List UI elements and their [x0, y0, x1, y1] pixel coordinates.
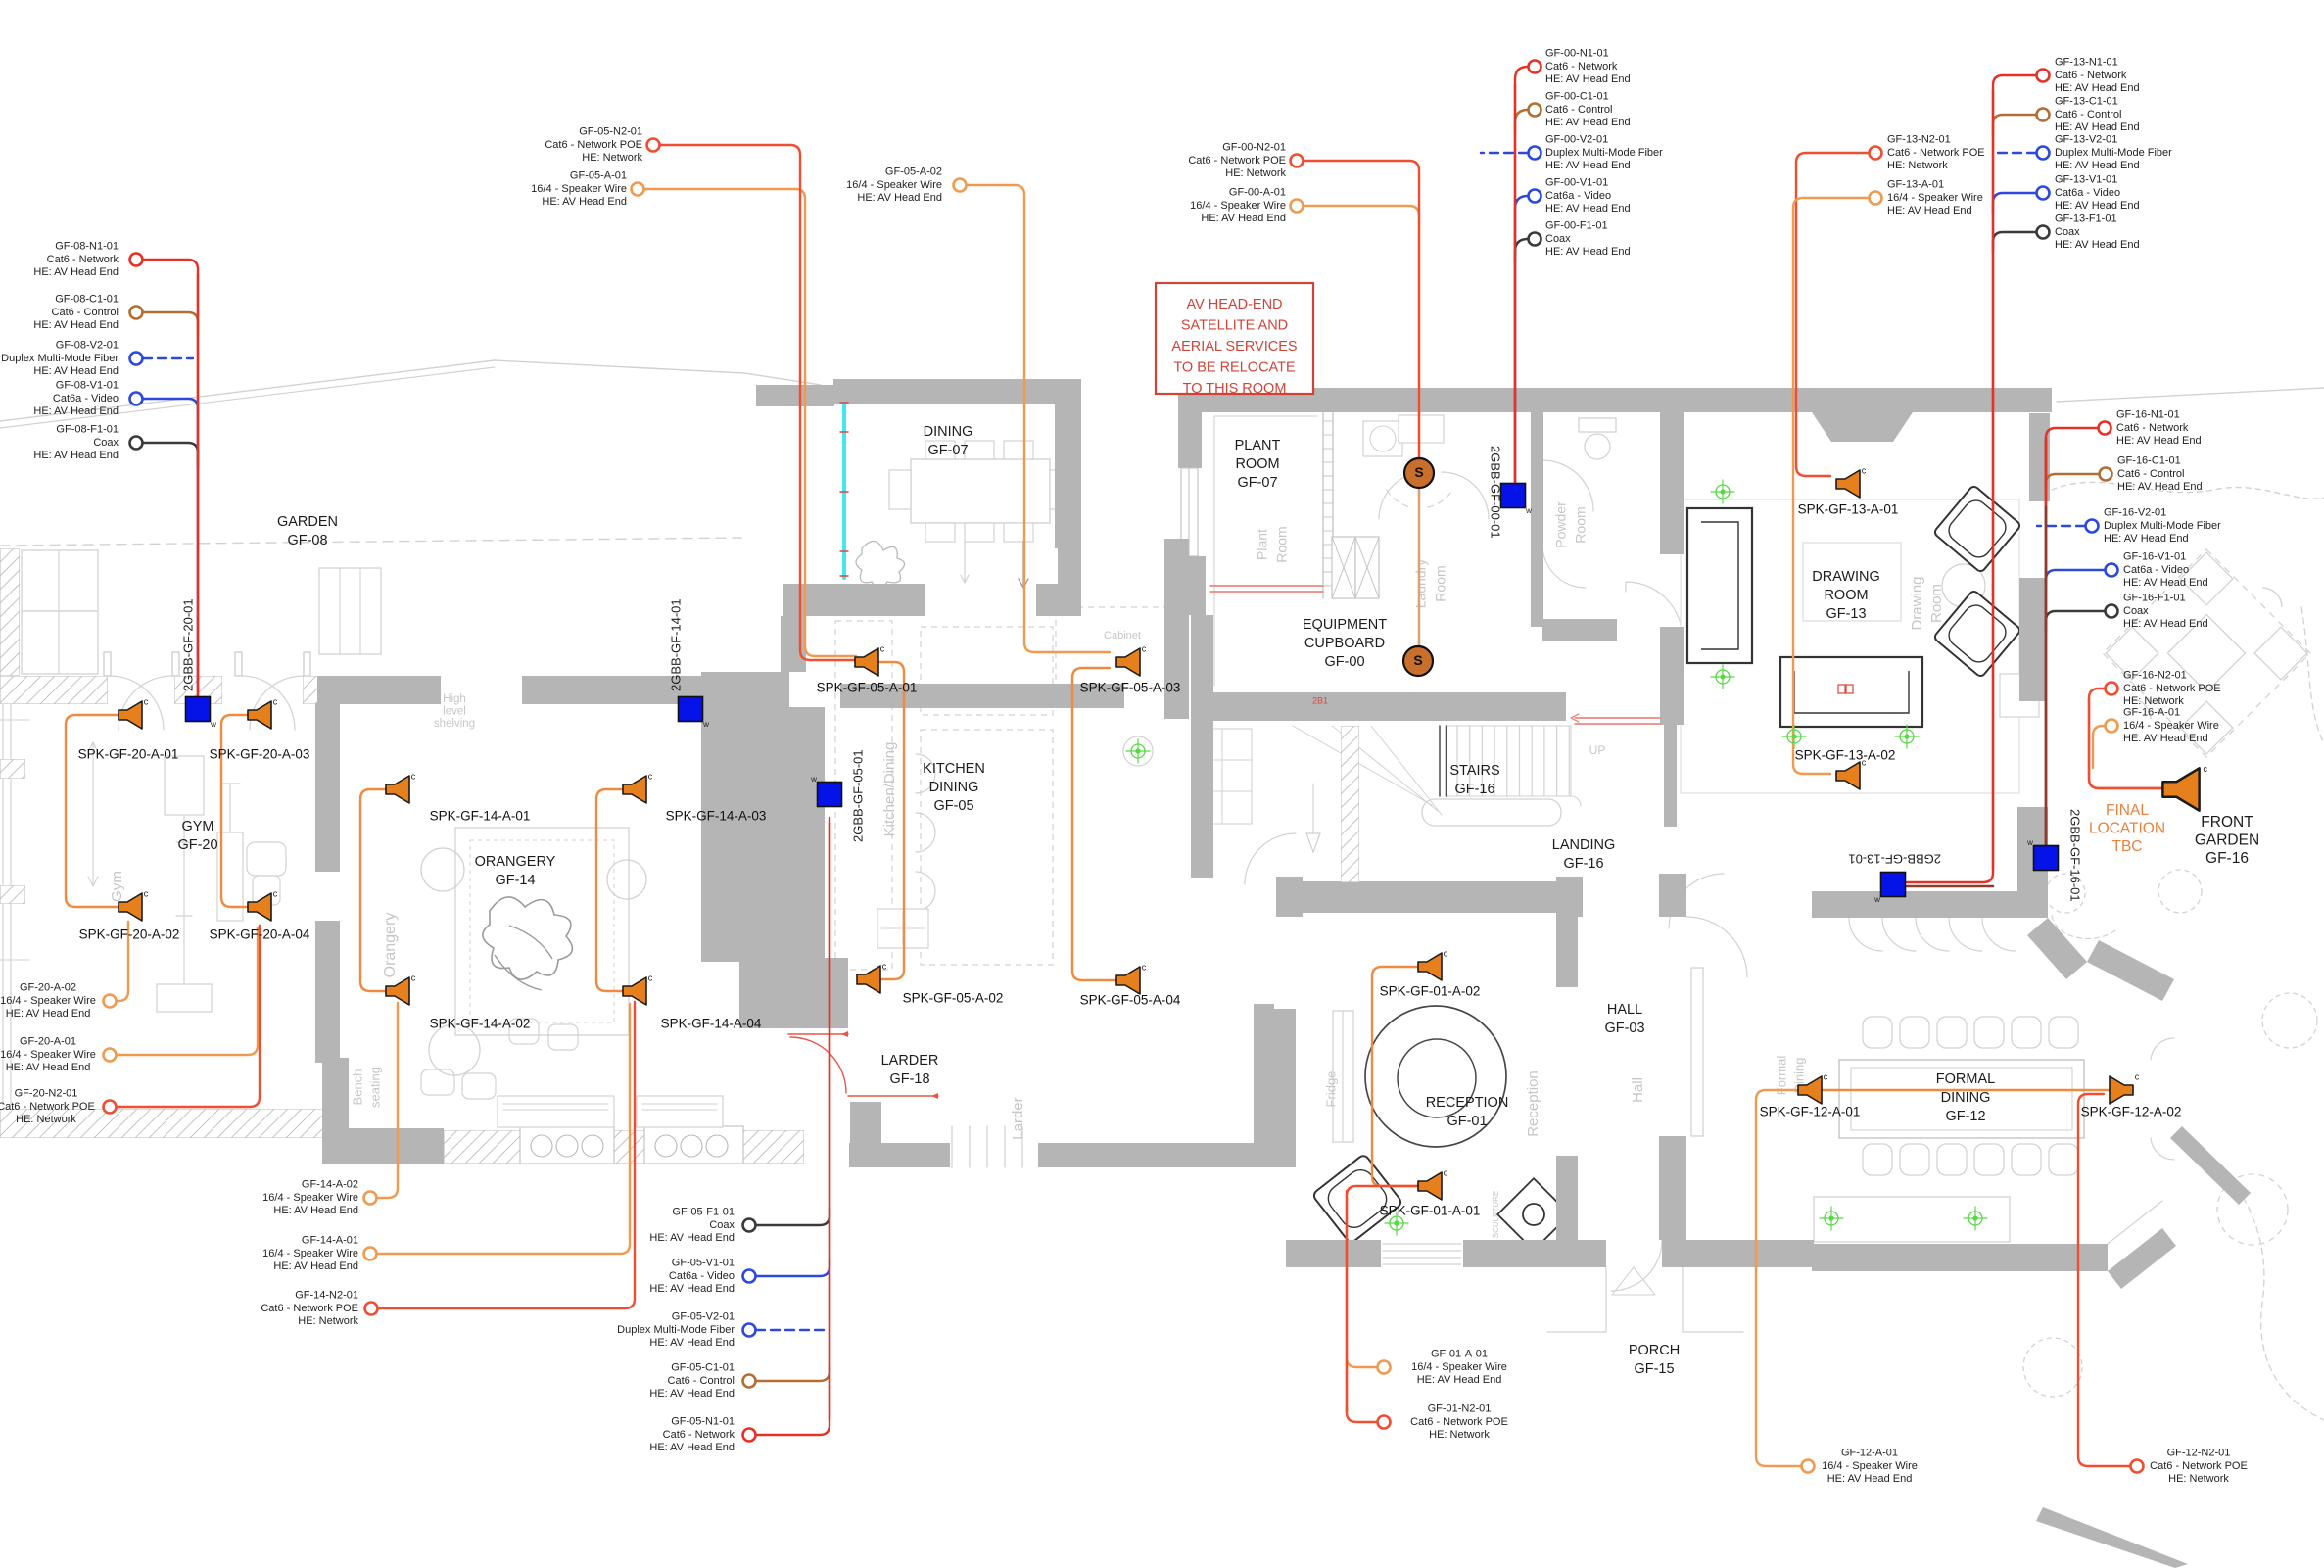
svg-text:SPK-GF-05-A-03: SPK-GF-05-A-03: [1080, 681, 1181, 695]
svg-text:SPK-GF-05-A-04: SPK-GF-05-A-04: [1080, 993, 1181, 1008]
svg-text:LOCATION: LOCATION: [2089, 821, 2165, 837]
svg-text:GYM: GYM: [181, 819, 213, 834]
svg-text:GF-00-A-01: GF-00-A-01: [1229, 187, 1286, 199]
svg-text:16/4 - Speaker Wire: 16/4 - Speaker Wire: [1822, 1460, 1918, 1472]
svg-text:GF-13-A-01: GF-13-A-01: [1887, 179, 1944, 191]
svg-text:STAIRS: STAIRS: [1449, 763, 1499, 779]
svg-text:SPK-GF-20-A-02: SPK-GF-20-A-02: [79, 927, 180, 942]
svg-text:ORANGERY: ORANGERY: [475, 854, 556, 870]
svg-text:c: c: [1824, 1071, 1828, 1081]
svg-text:HE: Network: HE: Network: [2123, 695, 2184, 707]
svg-text:GF-12-A-01: GF-12-A-01: [1841, 1448, 1898, 1459]
svg-text:HE: AV Head End: HE: AV Head End: [33, 450, 119, 461]
svg-text:HE: AV Head End: HE: AV Head End: [33, 266, 119, 278]
svg-text:GF-08-V1-01: GF-08-V1-01: [56, 380, 119, 392]
svg-text:Larder: Larder: [1010, 1097, 1026, 1139]
svg-text:c: c: [411, 973, 416, 982]
svg-text:Cat6 - Control: Cat6 - Control: [2055, 109, 2121, 120]
svg-text:16/4 - Speaker Wire: 16/4 - Speaker Wire: [1411, 1361, 1507, 1373]
svg-text:TO BE RELOCATE: TO BE RELOCATE: [1173, 359, 1296, 375]
svg-text:GF-13-F1-01: GF-13-F1-01: [2055, 214, 2117, 225]
svg-text:AERIAL SERVICES: AERIAL SERVICES: [1171, 339, 1297, 355]
svg-text:GF-05-N2-01: GF-05-N2-01: [579, 126, 642, 138]
svg-text:ROOM: ROOM: [1235, 456, 1279, 472]
svg-text:SPK-GF-05-A-01: SPK-GF-05-A-01: [817, 681, 918, 695]
svg-text:TO THIS ROOM: TO THIS ROOM: [1183, 381, 1287, 397]
svg-text:HE: AV Head End: HE: AV Head End: [2116, 435, 2202, 447]
svg-text:c: c: [1444, 1167, 1448, 1177]
svg-text:w: w: [1525, 506, 1532, 515]
svg-text:UP: UP: [1589, 743, 1606, 757]
svg-text:Cat6 - Network: Cat6 - Network: [2116, 422, 2189, 434]
svg-text:GF-00-C1-01: GF-00-C1-01: [1545, 91, 1609, 103]
svg-text:Duplex Multi-Mode Fiber: Duplex Multi-Mode Fiber: [1, 353, 119, 364]
svg-text:HE: AV Head End: HE: AV Head End: [1545, 246, 1631, 258]
svg-text:DINING: DINING: [924, 424, 973, 440]
svg-text:HE: AV Head End: HE: AV Head End: [2123, 733, 2208, 744]
svg-text:HE: AV Head End: HE: AV Head End: [1545, 203, 1631, 214]
svg-text:w: w: [1873, 895, 1880, 904]
svg-text:GF-16-N2-01: GF-16-N2-01: [2123, 670, 2187, 682]
svg-text:Cat6 - Network POE: Cat6 - Network POE: [2123, 683, 2221, 694]
svg-text:TBC: TBC: [2112, 838, 2143, 855]
svg-text:c: c: [1142, 962, 1147, 972]
svg-text:SPK-GF-14-A-02: SPK-GF-14-A-02: [430, 1017, 531, 1031]
svg-text:Cat6 - Network: Cat6 - Network: [663, 1429, 735, 1441]
svg-text:16/4 - Speaker Wire: 16/4 - Speaker Wire: [1190, 200, 1286, 212]
svg-text:GF-14-N2-01: GF-14-N2-01: [295, 1290, 358, 1302]
svg-text:c: c: [144, 696, 149, 706]
svg-text:HE: Network: HE: Network: [298, 1315, 358, 1327]
svg-text:GF-05-V2-01: GF-05-V2-01: [672, 1311, 735, 1323]
svg-text:16/4 - Speaker Wire: 16/4 - Speaker Wire: [531, 183, 627, 195]
svg-text:GF-13-N1-01: GF-13-N1-01: [2055, 57, 2118, 69]
svg-text:Cat6a - Video: Cat6a - Video: [669, 1270, 735, 1282]
svg-text:SPK-GF-14-A-04: SPK-GF-14-A-04: [661, 1017, 762, 1031]
svg-text:GF-08-C1-01: GF-08-C1-01: [55, 294, 119, 306]
svg-text:Cat6a - Video: Cat6a - Video: [1545, 190, 1611, 202]
svg-text:RECEPTION: RECEPTION: [1426, 1095, 1509, 1111]
svg-text:ROOM: ROOM: [1824, 588, 1868, 603]
svg-text:GF-16: GF-16: [2205, 850, 2249, 867]
svg-text:HE: AV Head End: HE: AV Head End: [1545, 160, 1631, 171]
svg-text:Cat6 - Network POE: Cat6 - Network POE: [0, 1101, 95, 1113]
svg-text:c: c: [648, 973, 653, 982]
svg-text:HE: AV Head End: HE: AV Head End: [2055, 200, 2140, 212]
svg-text:16/4 - Speaker Wire: 16/4 - Speaker Wire: [1887, 192, 1983, 204]
svg-text:HE: AV Head End: HE: AV Head End: [33, 405, 119, 417]
svg-text:c: c: [1444, 948, 1448, 958]
svg-text:S: S: [1413, 652, 1422, 668]
svg-text:Hall: Hall: [1630, 1077, 1646, 1103]
svg-text:GF-20-N2-01: GF-20-N2-01: [15, 1088, 78, 1100]
svg-text:GF-00-V1-01: GF-00-V1-01: [1545, 177, 1608, 189]
svg-text:GF-13-N2-01: GF-13-N2-01: [1887, 134, 1951, 146]
svg-text:HE: AV Head End: HE: AV Head End: [273, 1205, 358, 1216]
svg-text:HE: AV Head End: HE: AV Head End: [2104, 533, 2189, 545]
svg-text:GF-03: GF-03: [1604, 1021, 1644, 1036]
svg-text:HE: Network: HE: Network: [16, 1114, 76, 1125]
svg-text:S: S: [1414, 464, 1423, 480]
svg-text:HE: Network: HE: Network: [1429, 1429, 1490, 1441]
svg-text:GF-13: GF-13: [1826, 606, 1866, 622]
svg-text:FRONT: FRONT: [2201, 814, 2253, 831]
svg-text:GF-07: GF-07: [1237, 475, 1277, 491]
svg-text:Cabinet: Cabinet: [1104, 630, 1141, 641]
svg-text:SPK-GF-12-A-01: SPK-GF-12-A-01: [1760, 1105, 1861, 1119]
svg-text:SPK-GF-14-A-01: SPK-GF-14-A-01: [430, 809, 531, 824]
svg-text:Cat6 - Control: Cat6 - Control: [668, 1375, 735, 1387]
svg-text:Duplex Multi-Mode Fiber: Duplex Multi-Mode Fiber: [2104, 520, 2221, 532]
svg-text:DINING: DINING: [929, 780, 979, 795]
svg-text:LARDER: LARDER: [881, 1053, 939, 1069]
svg-text:Cat6a - Video: Cat6a - Video: [2123, 564, 2189, 576]
svg-text:Duplex Multi-Mode Fiber: Duplex Multi-Mode Fiber: [617, 1324, 735, 1336]
svg-text:GF-08: GF-08: [287, 533, 327, 548]
svg-text:GF-00-V2-01: GF-00-V2-01: [1545, 134, 1608, 146]
svg-text:2GBB-GF-20-01: 2GBB-GF-20-01: [180, 598, 195, 691]
svg-text:GF-00: GF-00: [1324, 654, 1364, 670]
svg-text:HE: Network: HE: Network: [582, 152, 642, 164]
svg-text:HE: AV Head End: HE: AV Head End: [542, 196, 627, 208]
svg-text:GF-05-C1-01: GF-05-C1-01: [671, 1362, 735, 1374]
svg-text:GF-14-A-01: GF-14-A-01: [302, 1235, 358, 1247]
svg-text:GF-08-V2-01: GF-08-V2-01: [56, 340, 119, 352]
svg-text:GF-00-F1-01: GF-00-F1-01: [1545, 220, 1608, 232]
svg-text:Orangery: Orangery: [382, 913, 399, 978]
svg-text:PORCH: PORCH: [1629, 1343, 1680, 1358]
svg-text:Cat6 - Control: Cat6 - Control: [1545, 104, 1612, 116]
svg-text:Cat6 - Network POE: Cat6 - Network POE: [2150, 1460, 2248, 1472]
svg-text:GF-14: GF-14: [495, 873, 535, 888]
svg-text:Cat6 - Network: Cat6 - Network: [47, 254, 119, 265]
svg-text:HE: AV Head End: HE: AV Head End: [2123, 577, 2208, 589]
svg-text:GF-13-V1-01: GF-13-V1-01: [2055, 174, 2117, 186]
svg-text:HE: AV Head End: HE: AV Head End: [2117, 481, 2203, 493]
svg-text:w: w: [810, 775, 817, 784]
svg-text:HE: AV Head End: HE: AV Head End: [1887, 205, 1972, 216]
svg-text:FINAL: FINAL: [2106, 802, 2149, 819]
svg-text:AV HEAD-END: AV HEAD-END: [1186, 297, 1282, 312]
svg-text:Cat6 - Control: Cat6 - Control: [52, 307, 119, 318]
svg-text:GF-13-V2-01: GF-13-V2-01: [2055, 134, 2117, 146]
svg-text:GARDEN: GARDEN: [2195, 832, 2259, 849]
svg-text:HE: Network: HE: Network: [2168, 1473, 2229, 1485]
svg-text:Cat6 - Network: Cat6 - Network: [1545, 61, 1618, 72]
svg-text:HE: AV Head End: HE: AV Head End: [33, 319, 119, 331]
svg-text:SPK-GF-05-A-02: SPK-GF-05-A-02: [903, 991, 1004, 1006]
svg-text:Room: Room: [1573, 506, 1589, 543]
svg-text:LANDING: LANDING: [1552, 837, 1615, 853]
svg-text:GF-15: GF-15: [1634, 1361, 1674, 1377]
svg-text:16/4 - Speaker Wire: 16/4 - Speaker Wire: [846, 179, 942, 191]
svg-text:GF-16-N1-01: GF-16-N1-01: [2116, 409, 2180, 421]
svg-text:seating: seating: [367, 1067, 382, 1108]
svg-text:HE: AV Head End: HE: AV Head End: [857, 192, 942, 204]
svg-text:DINING: DINING: [1941, 1090, 1991, 1106]
svg-text:Room: Room: [1433, 565, 1448, 601]
svg-text:HE: AV Head End: HE: AV Head End: [2055, 82, 2140, 94]
svg-text:GF-05: GF-05: [933, 798, 973, 814]
svg-text:HE: AV Head End: HE: AV Head End: [33, 365, 119, 377]
svg-text:2GBB-GF-16-01: 2GBB-GF-16-01: [2068, 809, 2083, 902]
svg-text:CUPBOARD: CUPBOARD: [1304, 636, 1385, 651]
svg-text:w: w: [2026, 838, 2033, 847]
svg-text:HE: AV Head End: HE: AV Head End: [1201, 213, 1286, 224]
svg-text:Coax: Coax: [93, 437, 119, 449]
svg-text:HE: AV Head End: HE: AV Head End: [2055, 121, 2140, 133]
svg-text:KITCHEN: KITCHEN: [923, 761, 985, 777]
svg-text:c: c: [2204, 764, 2208, 774]
svg-text:16/4 - Speaker Wire: 16/4 - Speaker Wire: [2123, 720, 2219, 732]
svg-text:Cat6 - Control: Cat6 - Control: [2117, 468, 2184, 480]
svg-text:GF-05-V1-01: GF-05-V1-01: [672, 1258, 735, 1269]
svg-text:Coax: Coax: [709, 1219, 735, 1231]
svg-text:SPK-GF-13-A-01: SPK-GF-13-A-01: [1798, 502, 1899, 517]
svg-text:Cat6a - Video: Cat6a - Video: [53, 393, 119, 404]
svg-text:High: High: [443, 693, 466, 705]
svg-text:shelving: shelving: [434, 718, 475, 730]
svg-text:c: c: [882, 961, 887, 971]
svg-text:Cat6 - Network POE: Cat6 - Network POE: [1410, 1416, 1508, 1428]
svg-text:SPK-GF-12-A-02: SPK-GF-12-A-02: [2081, 1105, 2182, 1119]
svg-text:GF-14-A-02: GF-14-A-02: [302, 1179, 358, 1191]
svg-text:SPK-GF-14-A-03: SPK-GF-14-A-03: [666, 809, 767, 824]
svg-text:level: level: [443, 706, 466, 718]
svg-text:GF-05-N1-01: GF-05-N1-01: [671, 1416, 735, 1428]
svg-text:Cat6 - Network: Cat6 - Network: [2055, 70, 2127, 81]
svg-text:Plant: Plant: [1255, 529, 1270, 560]
svg-text:SPK-GF-01-A-01: SPK-GF-01-A-01: [1380, 1204, 1481, 1218]
svg-text:Fridge: Fridge: [1323, 1071, 1338, 1108]
svg-text:Room: Room: [1274, 526, 1290, 562]
svg-text:Room: Room: [1928, 584, 1945, 623]
svg-text:Drawing: Drawing: [1909, 576, 1925, 630]
svg-text:HE: Network: HE: Network: [1225, 167, 1286, 179]
svg-text:DRAWING: DRAWING: [1812, 569, 1880, 585]
svg-text:HE: AV Head End: HE: AV Head End: [649, 1388, 735, 1400]
svg-text:Coax: Coax: [2055, 226, 2080, 238]
svg-text:Cat6 - Network POE: Cat6 - Network POE: [1887, 147, 1985, 159]
svg-text:GARDEN: GARDEN: [277, 514, 338, 530]
svg-text:GF-16-V2-01: GF-16-V2-01: [2104, 507, 2166, 519]
svg-text:GF-05-F1-01: GF-05-F1-01: [672, 1207, 735, 1218]
svg-text:GF-12-N2-01: GF-12-N2-01: [2167, 1448, 2231, 1459]
svg-text:c: c: [1142, 643, 1147, 653]
svg-text:2GBB-GF-00-01: 2GBB-GF-00-01: [1489, 446, 1503, 539]
svg-text:HE: AV Head End: HE: AV Head End: [1545, 73, 1631, 85]
svg-text:GF-05-A-01: GF-05-A-01: [570, 170, 627, 182]
svg-text:Coax: Coax: [2123, 605, 2149, 617]
svg-text:SPK-GF-20-A-03: SPK-GF-20-A-03: [210, 747, 310, 762]
svg-text:c: c: [144, 888, 149, 898]
svg-text:GF-12: GF-12: [1945, 1109, 1985, 1124]
svg-text:Kitchen/Dining: Kitchen/Dining: [881, 742, 898, 837]
svg-text:c: c: [273, 696, 278, 706]
svg-text:GF-05-A-02: GF-05-A-02: [885, 166, 942, 178]
svg-text:GF-20: GF-20: [177, 837, 217, 853]
svg-text:HE: AV Head End: HE: AV Head End: [649, 1232, 735, 1244]
svg-text:Gym: Gym: [109, 871, 125, 902]
svg-text:Bench: Bench: [350, 1069, 364, 1106]
svg-text:SCULPTURE: SCULPTURE: [1492, 1191, 1500, 1238]
svg-text:GF-00-N2-01: GF-00-N2-01: [1222, 142, 1286, 154]
svg-text:GF-16: GF-16: [1563, 856, 1603, 872]
svg-text:2B1: 2B1: [1312, 695, 1328, 705]
svg-text:HE: AV Head End: HE: AV Head End: [6, 1062, 91, 1073]
svg-text:Reception: Reception: [1525, 1070, 1541, 1137]
svg-text:HE: AV Head End: HE: AV Head End: [649, 1283, 735, 1295]
svg-text:Duplex Multi-Mode Fiber: Duplex Multi-Mode Fiber: [2055, 147, 2172, 159]
svg-text:16/4 - Speaker Wire: 16/4 - Speaker Wire: [0, 1049, 96, 1061]
svg-text:HE: AV Head End: HE: AV Head End: [649, 1337, 735, 1349]
svg-text:GF-16-A-01: GF-16-A-01: [2123, 707, 2180, 719]
svg-text:HE: AV Head End: HE: AV Head End: [1417, 1374, 1502, 1386]
svg-text:HE: AV Head End: HE: AV Head End: [1827, 1473, 1913, 1485]
svg-text:w: w: [702, 720, 709, 729]
svg-text:Cat6 - Network POE: Cat6 - Network POE: [261, 1303, 358, 1314]
svg-text:HE: AV Head End: HE: AV Head End: [2055, 160, 2140, 171]
svg-text:2GBB-GF-14-01: 2GBB-GF-14-01: [668, 598, 683, 691]
svg-text:GF-01-N2-01: GF-01-N2-01: [1428, 1403, 1492, 1415]
svg-text:2GBB-GF-13-01: 2GBB-GF-13-01: [1848, 852, 1941, 867]
svg-text:GF-20-A-01: GF-20-A-01: [20, 1036, 76, 1048]
svg-text:SPK-GF-20-A-01: SPK-GF-20-A-01: [78, 747, 179, 762]
svg-text:GF-18: GF-18: [889, 1071, 929, 1087]
svg-text:SATELLITE AND: SATELLITE AND: [1181, 317, 1288, 333]
svg-text:GF-00-N1-01: GF-00-N1-01: [1545, 48, 1609, 60]
svg-text:Cat6 - Network POE: Cat6 - Network POE: [545, 139, 642, 151]
svg-text:GF-20-A-02: GF-20-A-02: [20, 982, 76, 994]
svg-text:16/4 - Speaker Wire: 16/4 - Speaker Wire: [0, 995, 96, 1007]
svg-text:HE: Network: HE: Network: [1887, 160, 1948, 171]
svg-text:EQUIPMENT: EQUIPMENT: [1303, 617, 1387, 633]
svg-text:FORMAL: FORMAL: [1936, 1071, 1995, 1087]
svg-text:c: c: [648, 771, 653, 781]
svg-text:c: c: [273, 888, 278, 898]
svg-text:c: c: [2135, 1071, 2140, 1081]
svg-text:Laundry: Laundry: [1413, 559, 1429, 609]
svg-text:GF-13-C1-01: GF-13-C1-01: [2055, 96, 2118, 108]
svg-text:Duplex Multi-Mode Fiber: Duplex Multi-Mode Fiber: [1545, 147, 1663, 159]
svg-text:HE: AV Head End: HE: AV Head End: [273, 1260, 358, 1272]
svg-text:HE: AV Head End: HE: AV Head End: [2123, 618, 2208, 630]
svg-text:16/4 - Speaker Wire: 16/4 - Speaker Wire: [262, 1248, 358, 1259]
svg-text:HE: AV Head End: HE: AV Head End: [649, 1442, 735, 1453]
svg-text:SPK-GF-13-A-02: SPK-GF-13-A-02: [1795, 748, 1896, 763]
svg-text:Coax: Coax: [1545, 233, 1571, 245]
svg-text:c: c: [880, 643, 885, 653]
svg-text:SPK-GF-01-A-02: SPK-GF-01-A-02: [1380, 984, 1481, 999]
svg-text:Cat6 - Network POE: Cat6 - Network POE: [1188, 155, 1286, 166]
svg-text:16/4 - Speaker Wire: 16/4 - Speaker Wire: [262, 1192, 358, 1204]
svg-text:HE: AV Head End: HE: AV Head End: [6, 1008, 91, 1020]
svg-text:HE: AV Head End: HE: AV Head End: [2055, 239, 2140, 251]
svg-text:GF-16: GF-16: [1454, 782, 1494, 797]
svg-text:GF-16-F1-01: GF-16-F1-01: [2123, 593, 2186, 604]
svg-text:Powder: Powder: [1553, 501, 1569, 548]
svg-text:GF-08-N1-01: GF-08-N1-01: [55, 241, 119, 253]
svg-text:GF-08-F1-01: GF-08-F1-01: [56, 424, 119, 436]
svg-text:Cat6a - Video: Cat6a - Video: [2055, 187, 2120, 199]
svg-text:SPK-GF-20-A-04: SPK-GF-20-A-04: [210, 927, 310, 942]
svg-text:GF-16-C1-01: GF-16-C1-01: [2117, 455, 2181, 467]
svg-text:HE: AV Head End: HE: AV Head End: [1545, 117, 1631, 128]
svg-text:GF-16-V1-01: GF-16-V1-01: [2123, 551, 2186, 563]
svg-text:w: w: [210, 720, 216, 729]
svg-text:HALL: HALL: [1607, 1002, 1642, 1018]
svg-text:2GBB-GF-05-01: 2GBB-GF-05-01: [850, 749, 865, 842]
svg-text:c: c: [411, 771, 416, 781]
svg-text:PLANT: PLANT: [1235, 438, 1281, 453]
svg-text:c: c: [1862, 465, 1867, 475]
svg-text:GF-01-A-01: GF-01-A-01: [1431, 1349, 1488, 1360]
svg-text:GF-01: GF-01: [1447, 1114, 1487, 1129]
svg-text:GF-07: GF-07: [927, 443, 968, 458]
